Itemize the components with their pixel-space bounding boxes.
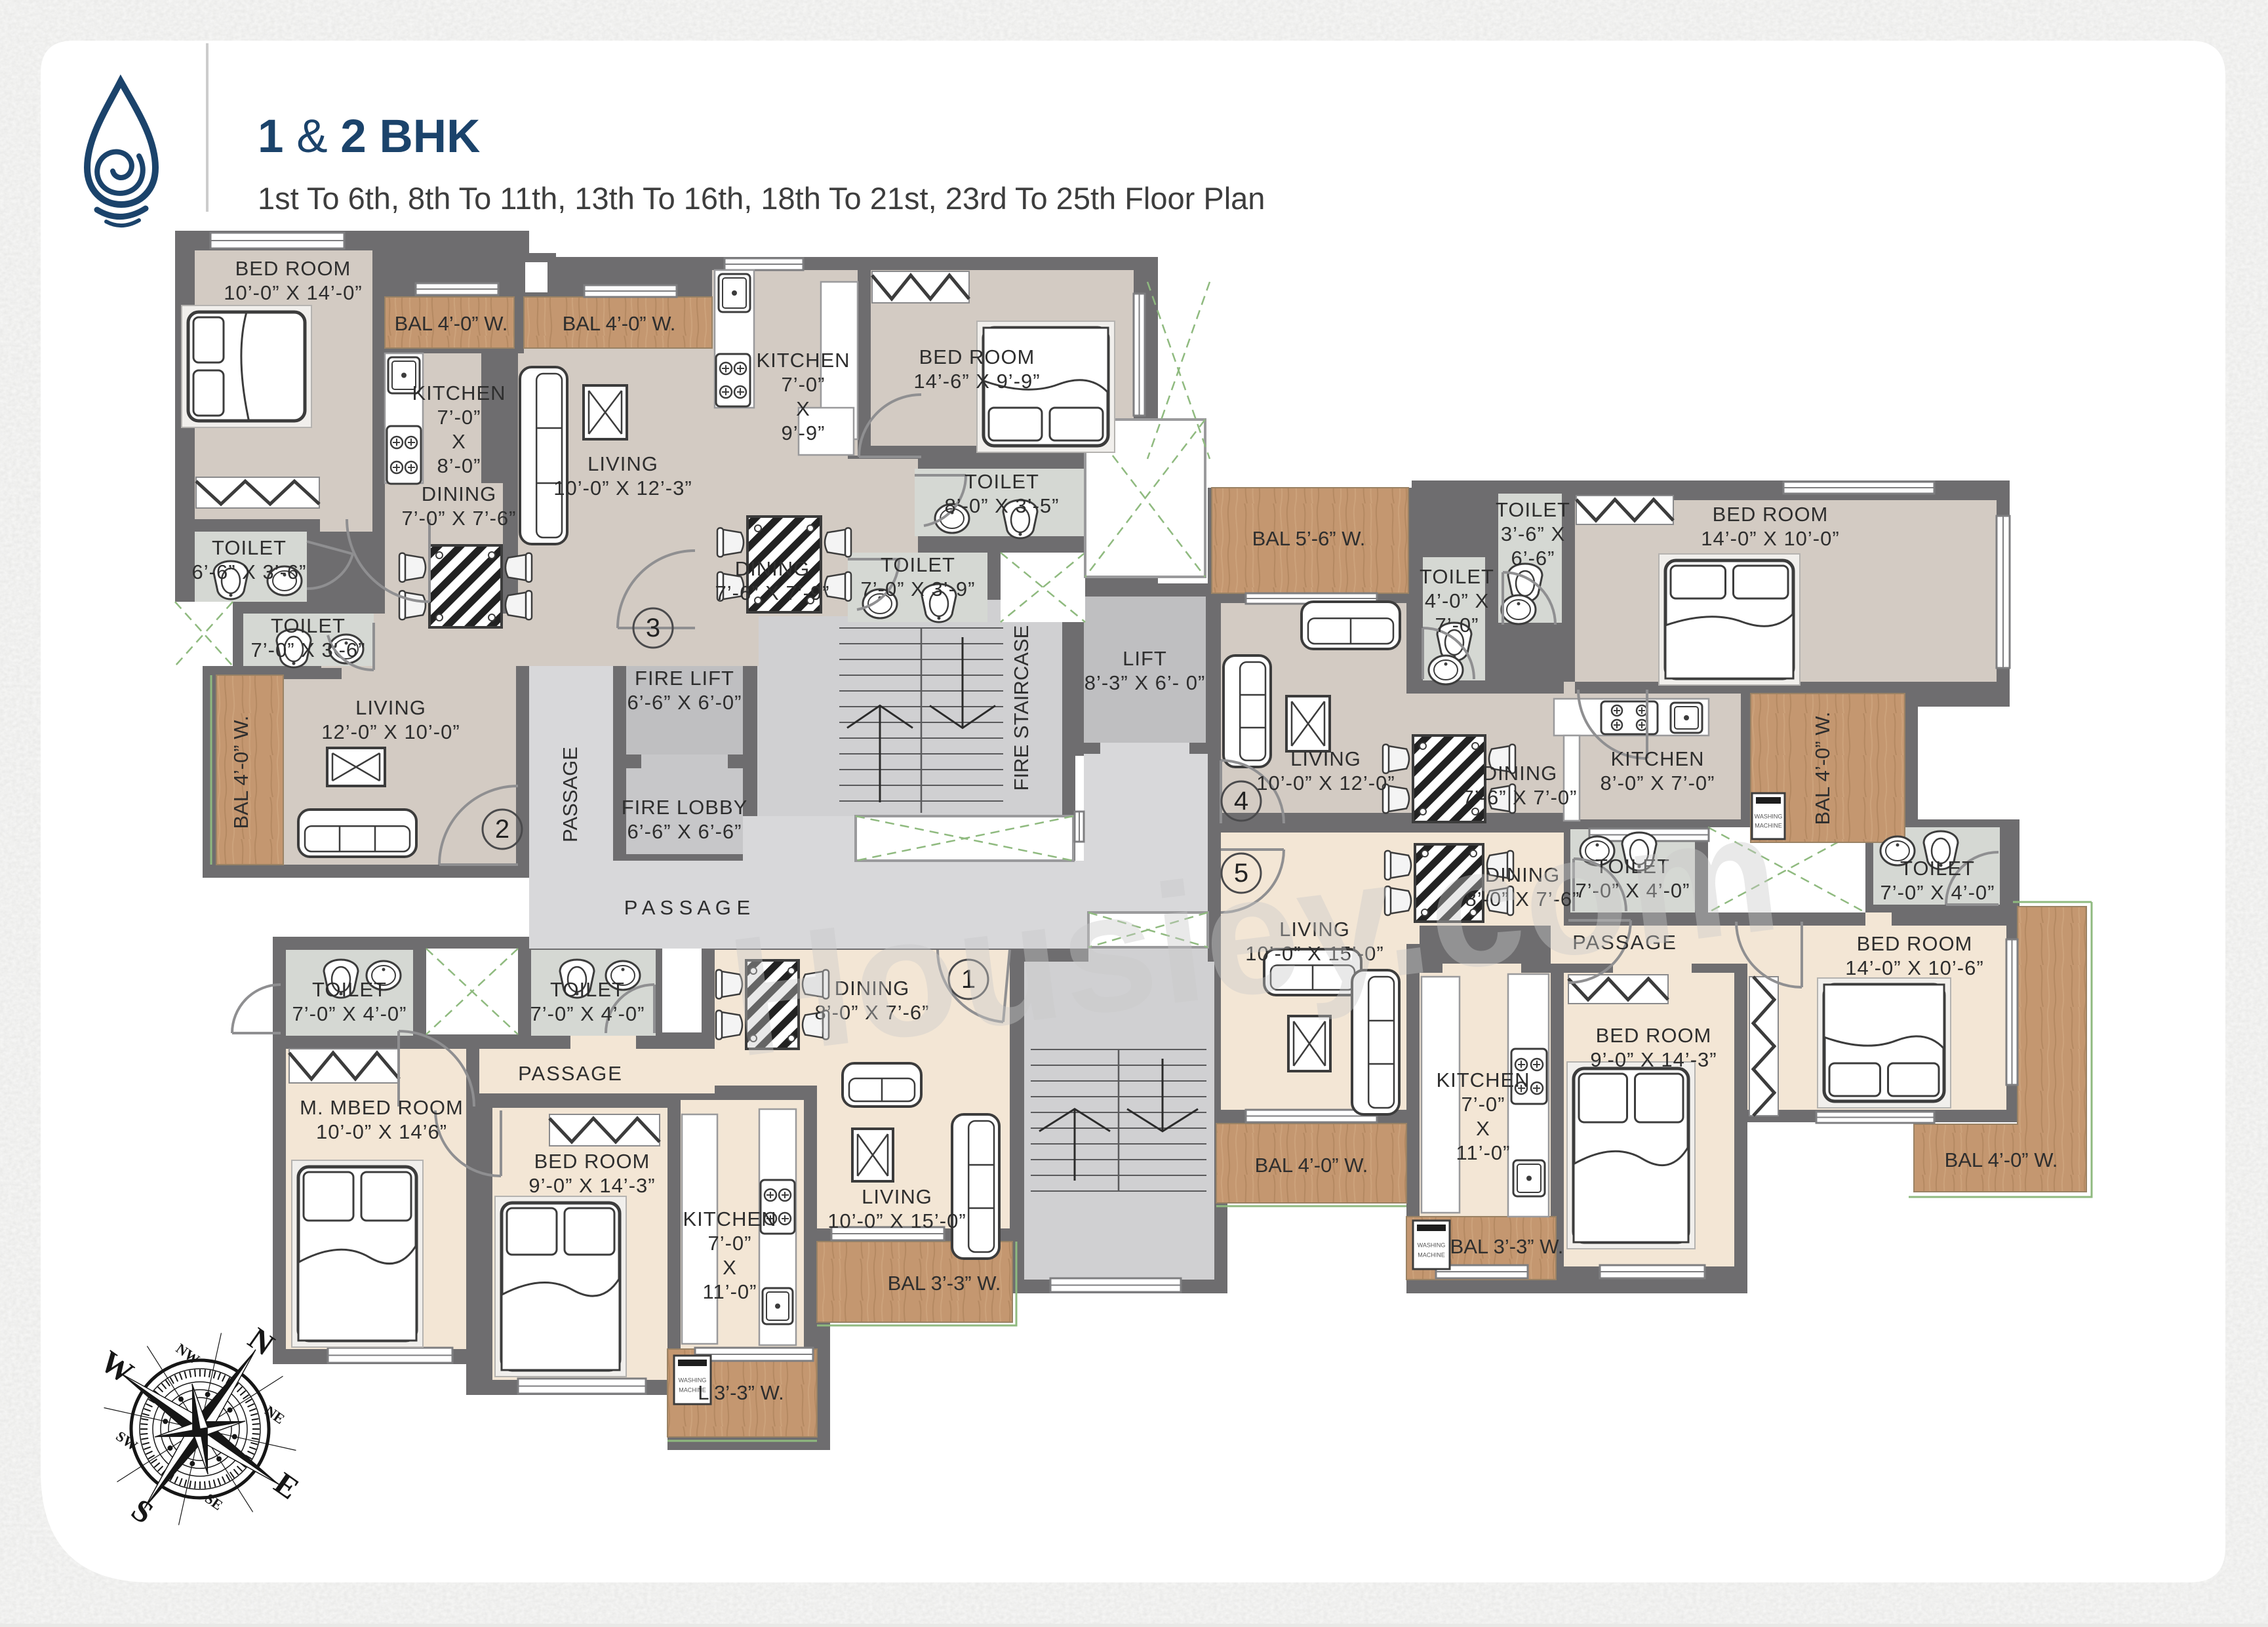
svg-text:X: X [452,430,466,453]
svg-text:M. MBED ROOM: M. MBED ROOM [300,1096,464,1119]
svg-text:TOILET: TOILET [312,978,387,1001]
svg-text:9’-9”: 9’-9” [781,421,825,444]
svg-text:TOILET: TOILET [1420,565,1494,588]
svg-text:L 3’-3” W.: L 3’-3” W. [698,1381,784,1404]
svg-text:10’-0” X 14’-0”: 10’-0” X 14’-0” [224,281,362,304]
svg-text:2: 2 [495,815,509,844]
svg-text:8’-0” X 3’-5”: 8’-0” X 3’-5” [945,494,1060,517]
svg-text:DINING: DINING [422,482,497,505]
svg-text:BED ROOM: BED ROOM [534,1150,650,1173]
svg-text:10’-0” X 12’-0”: 10’-0” X 12’-0” [1256,772,1395,794]
svg-text:LIVING: LIVING [355,696,426,719]
svg-text:X: X [723,1256,737,1279]
svg-text:TOILET: TOILET [965,470,1039,493]
svg-text:LIVING: LIVING [587,452,658,475]
svg-text:X: X [1476,1117,1490,1140]
svg-text:FIRE STAIRCASE: FIRE STAIRCASE [1010,625,1033,791]
svg-text:14’-0” X 10’-6”: 14’-0” X 10’-6” [1845,956,1983,979]
svg-text:TOILET: TOILET [1900,857,1975,880]
svg-text:LIFT: LIFT [1123,647,1167,670]
svg-text:TOILET: TOILET [550,978,625,1001]
svg-text:BAL 4’-0” W.: BAL 4’-0” W. [1811,712,1834,825]
svg-text:1 & 2 BHK: 1 & 2 BHK [258,111,480,163]
svg-text:7’-0” X 4’-0”: 7’-0” X 4’-0” [1880,881,1995,904]
svg-text:BAL 3’-3” W.: BAL 3’-3” W. [888,1272,1001,1295]
svg-text:KITCHEN: KITCHEN [683,1207,776,1230]
svg-text:BAL 4’-0” W.: BAL 4’-0” W. [1255,1154,1368,1177]
svg-text:4: 4 [1234,787,1248,815]
svg-text:10’-0” X 14’6”: 10’-0” X 14’6” [316,1120,447,1143]
svg-text:PASSAGE: PASSAGE [518,1062,623,1085]
svg-text:X: X [796,397,810,420]
svg-text:DINING: DINING [1482,762,1558,785]
svg-text:TOILET: TOILET [881,553,955,576]
svg-text:10’-0” X 12’-3”: 10’-0” X 12’-3” [553,477,692,500]
svg-text:10’-0” X 15’-0”: 10’-0” X 15’-0” [827,1209,966,1232]
svg-text:WASHING: WASHING [1418,1242,1446,1249]
svg-text:TOILET: TOILET [1496,498,1570,521]
svg-text:7’-0”: 7’-0” [707,1232,751,1255]
svg-text:7’-0” X 3’-9”: 7’-0” X 3’-9” [861,578,976,600]
svg-text:BAL 4’-0” W.: BAL 4’-0” W. [395,312,508,335]
svg-text:BED ROOM: BED ROOM [919,345,1035,368]
svg-text:BAL 4’-0” W.: BAL 4’-0” W. [229,716,252,829]
svg-text:6’-6” X 6’-0”: 6’-6” X 6’-0” [627,691,742,714]
svg-text:BAL 4’-0” W.: BAL 4’-0” W. [563,312,676,335]
svg-text:KITCHEN: KITCHEN [1610,747,1704,770]
svg-text:7’-0”: 7’-0” [437,406,481,429]
svg-text:TOILET: TOILET [271,614,346,637]
svg-text:DINING: DINING [735,557,810,580]
svg-text:7’-0” X 3’-6”: 7’-0” X 3’-6” [251,638,366,661]
svg-text:1st To 6th, 8th To 11th, 13th: 1st To 6th, 8th To 11th, 13th To 16th, 1… [258,181,1265,216]
svg-text:9’-0” X 14’-3”: 9’-0” X 14’-3” [528,1174,655,1197]
svg-text:BED ROOM: BED ROOM [1713,503,1829,526]
svg-text:8’-3” X 6’- 0”: 8’-3” X 6’- 0” [1084,671,1206,694]
svg-text:KITCHEN: KITCHEN [412,382,506,404]
svg-text:12’-0” X 10’-0”: 12’-0” X 10’-0” [321,720,460,743]
svg-text:8’-0”: 8’-0” [437,454,481,477]
svg-text:6’-6” X 6’-6”: 6’-6” X 6’-6” [627,820,742,843]
svg-text:LIVING: LIVING [862,1185,932,1208]
svg-text:14’-6” X 9’-9”: 14’-6” X 9’-9” [913,370,1040,393]
svg-text:7’-0” X 4’-0”: 7’-0” X 4’-0” [530,1002,645,1025]
svg-text:9’-0” X 14’-3”: 9’-0” X 14’-3” [1590,1048,1717,1071]
svg-text:BAL 5’-6” W.: BAL 5’-6” W. [1252,527,1366,550]
svg-text:3’-6” X: 3’-6” X [1501,522,1565,545]
svg-text:FIRE LOBBY: FIRE LOBBY [622,796,748,819]
svg-text:BED ROOM: BED ROOM [1596,1024,1712,1047]
svg-text:7’-6” X 7’-9”: 7’-6” X 7’-9” [715,581,830,604]
svg-text:7’-0”: 7’-0” [1435,614,1479,637]
svg-text:6’-6” X 3’-6”: 6’-6” X 3’-6” [192,560,307,583]
svg-text:PASSAGE: PASSAGE [559,747,582,842]
svg-text:11’-0”: 11’-0” [703,1280,757,1303]
svg-text:11’-0”: 11’-0” [1456,1141,1511,1164]
svg-text:KITCHEN: KITCHEN [1436,1068,1530,1091]
svg-text:7’-0” X 7’-6”: 7’-0” X 7’-6” [402,507,517,530]
svg-text:BAL 3’-3” W.: BAL 3’-3” W. [1450,1235,1564,1258]
svg-text:BED ROOM: BED ROOM [235,257,351,280]
svg-text:4’-0” X: 4’-0” X [1425,589,1489,612]
svg-text:6’-6”: 6’-6” [1511,547,1555,570]
svg-text:BED ROOM: BED ROOM [1857,932,1973,955]
svg-text:TOILET: TOILET [212,536,287,559]
svg-text:7’-0”: 7’-0” [1461,1093,1505,1116]
svg-text:MACHINE: MACHINE [1418,1252,1445,1259]
svg-text:3: 3 [646,614,660,642]
svg-text:FIRE LIFT: FIRE LIFT [635,667,734,690]
svg-text:7’-0” X 4’-0”: 7’-0” X 4’-0” [292,1002,407,1025]
svg-text:LIVING: LIVING [1290,747,1361,770]
svg-text:14’-0” X 10’-0”: 14’-0” X 10’-0” [1701,527,1839,550]
svg-text:BAL 4’-0” W.: BAL 4’-0” W. [1945,1148,2058,1171]
svg-text:7’-0”: 7’-0” [781,373,825,396]
svg-text:KITCHEN: KITCHEN [756,349,850,372]
